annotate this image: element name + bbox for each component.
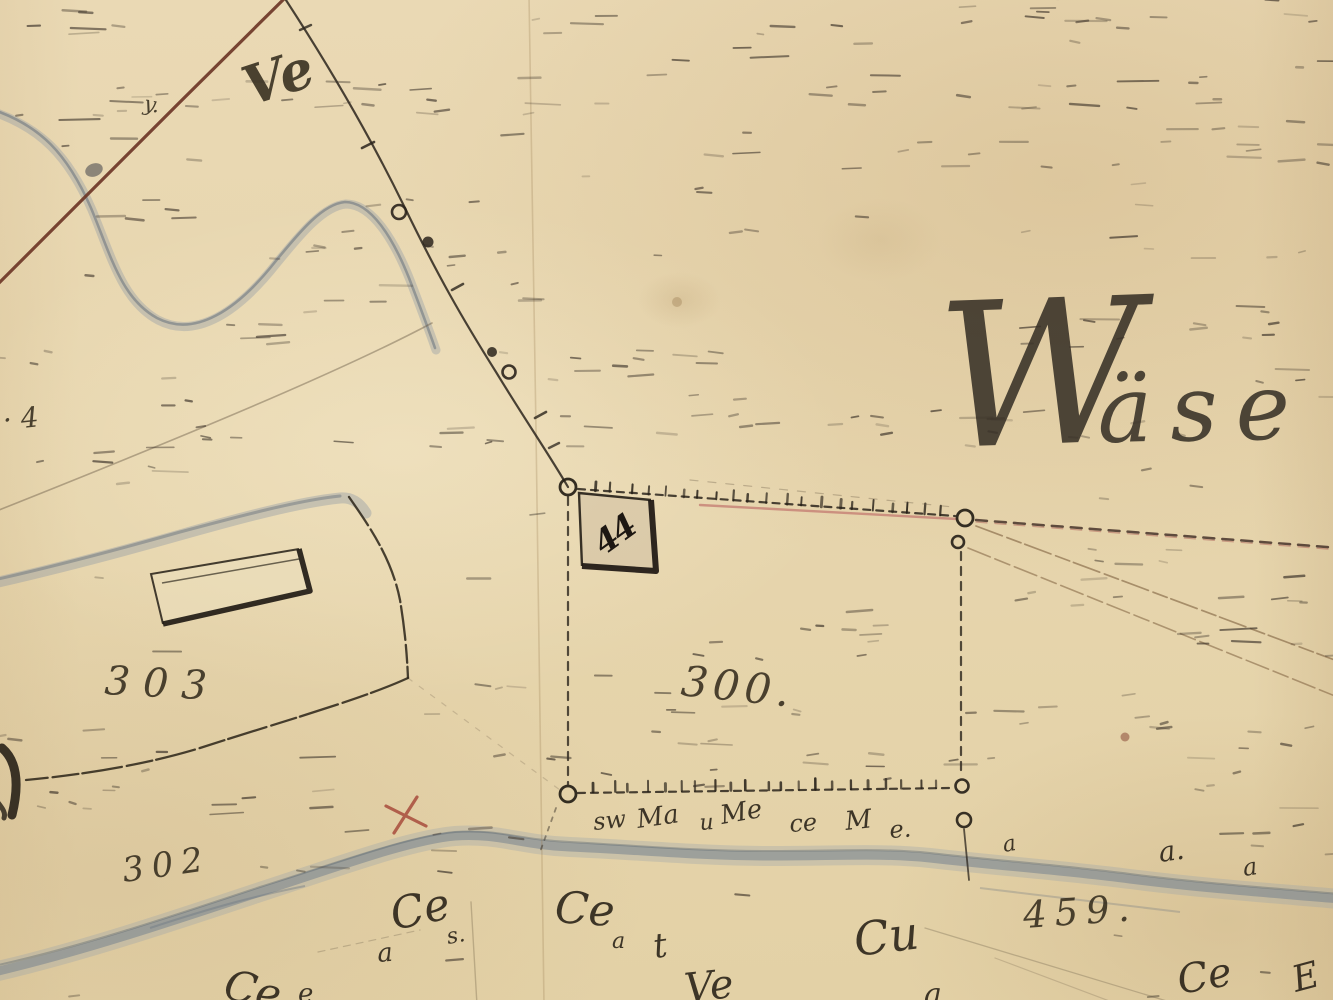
faint-continuation [408, 678, 560, 790]
scribble-glyph: Ma [634, 799, 681, 835]
script-place-name: W äse [934, 254, 1309, 495]
scribble-glyph: s. [445, 922, 467, 950]
corner-circle-tr2 [952, 536, 964, 548]
scribble-glyph: E [1287, 954, 1324, 1000]
scribble-glyph: Ce [220, 960, 286, 1000]
scribble-glyph: e [298, 979, 313, 1000]
corner-circle-bl [560, 786, 576, 802]
parcel-label-300: 300. [679, 656, 797, 717]
stream-bank-smudge [83, 161, 104, 179]
scribble-glyph: a [1241, 852, 1259, 882]
short-vertical-pencil [471, 902, 477, 1000]
red-cross-stroke-2 [394, 797, 417, 833]
faint-diag-bottom-2 [995, 958, 1120, 1000]
edge-number-4: · 4 [1, 400, 40, 437]
faint-diag-bottom-1 [925, 928, 1180, 1000]
parcel-label-303: 303 [103, 658, 221, 710]
scribble-glyph: Ve [682, 961, 735, 1000]
scribble-glyph: M [843, 804, 875, 837]
left-edge-dark-blob-2 [0, 800, 5, 818]
black-east-line [349, 497, 408, 678]
brown-stain-dot [672, 297, 682, 307]
tick-3 [452, 284, 463, 290]
scribble-glyph: a [924, 977, 942, 1000]
tick-4 [535, 412, 546, 418]
scribble-glyph: a [612, 929, 625, 954]
scribble-glyph: Ce [553, 882, 616, 937]
scribble-glyph: Ce [386, 878, 455, 940]
scribble-glyph: Ce [1174, 949, 1235, 1000]
survey-circle-2 [503, 366, 516, 379]
corner-circle-br2 [957, 813, 971, 827]
parcel-label-459: 459. [1021, 886, 1139, 937]
scribble-glyph: a. [1156, 833, 1186, 869]
parcel-label-302: 302 [120, 839, 214, 891]
tick-5 [549, 443, 559, 448]
edge-bottom [578, 788, 951, 793]
faint-upper-line [0, 323, 432, 512]
red-cross-mark [386, 797, 426, 833]
vegetation-scribbles: Ceas.CeatCuCeCeeVeaEswMauMeceMe.aa.a [220, 794, 1324, 1000]
left-edge-dark-blob [2, 748, 16, 815]
survey-blob-2 [487, 347, 497, 357]
scribble-glyph: a [1001, 831, 1018, 858]
scribble-glyph: t [651, 925, 670, 967]
scribble-glyph: Me [717, 794, 765, 831]
scribble-glyph: a [376, 938, 394, 969]
scribble-glyph: Cu [851, 905, 922, 966]
scribble-glyph: u [699, 810, 715, 836]
red-dot [1121, 733, 1130, 742]
scribble-glyph: sw [592, 805, 628, 836]
building-303 [151, 549, 310, 624]
corner-circle-br [956, 780, 969, 793]
historical-map-canvas: 44 300. 303 302 459. · 4 y. Ve W äse Cea… [0, 0, 1333, 1000]
scribble-glyph: ce [788, 808, 818, 838]
corner-circle-tr [957, 510, 973, 526]
survey-circle-1 [392, 205, 406, 219]
sepia-diagonal-2 [968, 548, 1333, 698]
building-44: 44 [579, 493, 656, 571]
flourish-mark: Ve [234, 35, 322, 118]
map-drawing: 44 300. 303 302 459. · 4 y. Ve W äse Cea… [0, 0, 1333, 1000]
main-boundary-line [282, 0, 568, 487]
dashed-line-east [976, 520, 1333, 548]
scribble-glyph: e. [888, 815, 912, 844]
